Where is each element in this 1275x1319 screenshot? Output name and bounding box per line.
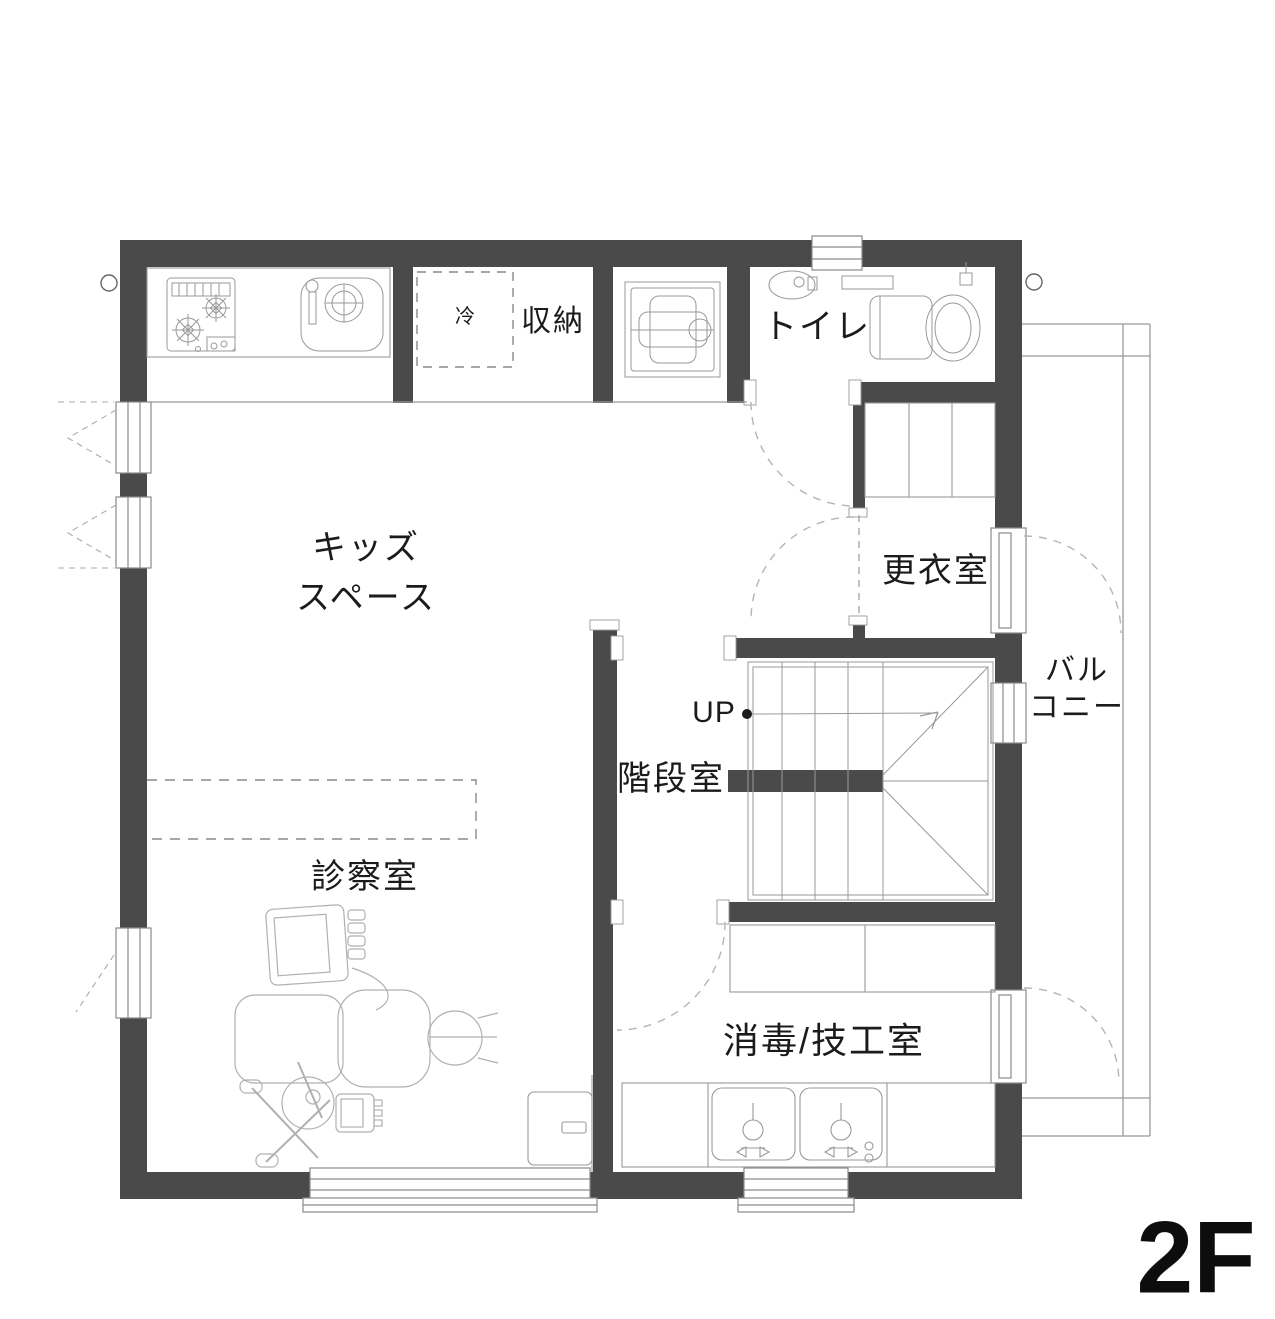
window-stair-right xyxy=(991,683,1026,743)
toilet-icon xyxy=(870,262,980,361)
window-left-2 xyxy=(116,497,151,568)
dental-chair-icon xyxy=(235,904,498,1167)
stairwell-label: 階段室 xyxy=(617,762,725,796)
toilet-door-arc xyxy=(751,402,855,506)
casement-symbols xyxy=(58,402,116,1012)
balcony-label-line1: バル xyxy=(1045,656,1109,686)
window-bottom-lab xyxy=(738,1168,854,1212)
window-left-3 xyxy=(116,928,151,1018)
up-arrow-icon xyxy=(920,712,938,729)
toilet-label: トイレ xyxy=(763,310,871,344)
stove-icon xyxy=(167,278,235,352)
wall-segment xyxy=(995,1083,1022,1172)
wall-segment xyxy=(120,267,147,402)
kitchen-counter xyxy=(147,268,390,357)
wall-segment xyxy=(593,628,617,922)
wall-segment xyxy=(120,568,147,928)
wall-segment xyxy=(593,922,613,1172)
wall-segment xyxy=(848,1172,1022,1199)
wall-segment xyxy=(855,382,995,403)
window-left-1 xyxy=(116,402,151,473)
wall-segment xyxy=(723,902,997,922)
kitchen-sink-icon xyxy=(301,278,383,351)
up-label: UP xyxy=(692,698,736,728)
balcony-door-arc-upper xyxy=(1024,536,1121,633)
door-swing-arcs xyxy=(617,402,1121,1083)
wall-segment xyxy=(393,267,413,403)
floor-plan: キッズ スペース 収納 冷 トイレ 更衣室 バル コニー UP 階段室 診察室 … xyxy=(0,0,1275,1319)
exam-room-label: 診察室 xyxy=(311,860,419,894)
stair-landing-wall xyxy=(728,770,883,792)
hand-basin-icon xyxy=(769,271,817,299)
storage-label: 収納 xyxy=(521,307,585,337)
changing-door-arc xyxy=(751,517,854,620)
floor-label: 2F xyxy=(1136,1200,1255,1317)
utility-fixture-icon xyxy=(625,282,720,377)
wall-segment xyxy=(730,638,995,658)
lab-sink-icon xyxy=(800,1088,882,1162)
window-toilet-top xyxy=(812,236,862,270)
wall-segment xyxy=(590,1172,747,1199)
balcony-door-lower xyxy=(991,990,1026,1083)
balcony-label-line2: コニー xyxy=(1029,693,1125,723)
kids-space-label-line2: スペース xyxy=(296,581,436,615)
refrigerator-label: 冷 xyxy=(455,307,477,327)
disinfection-lab-label: 消毒/技工室 xyxy=(723,1023,925,1059)
wall-segment xyxy=(593,267,613,403)
wall-segment xyxy=(860,240,1022,267)
wall-segment xyxy=(120,1172,310,1199)
lab-door-arc xyxy=(617,922,725,1030)
wardrobe xyxy=(865,403,995,497)
changing-room-label: 更衣室 xyxy=(882,554,990,588)
toilet-shelf xyxy=(842,276,893,289)
wall-segment xyxy=(120,473,147,497)
balcony-door-arc-lower xyxy=(1024,988,1119,1083)
wall-segment xyxy=(995,633,1022,683)
up-start-dot xyxy=(742,709,752,719)
exam-door-leaf xyxy=(528,1075,592,1172)
exam-partition-dashed xyxy=(147,780,476,839)
wall-segment xyxy=(120,240,815,267)
wall-segment xyxy=(853,403,865,513)
exterior-vent-circles xyxy=(101,274,1042,291)
wall-segment xyxy=(995,743,1022,990)
kids-space-label-line1: キッズ xyxy=(312,531,420,565)
balcony-outline xyxy=(1022,324,1150,1136)
window-bottom-exam xyxy=(303,1168,597,1212)
balcony-door-upper xyxy=(991,528,1026,633)
lab-sink-icon xyxy=(712,1088,795,1160)
lab-sink-counter xyxy=(622,1083,995,1167)
wall-segment xyxy=(995,267,1022,528)
lab-cabinets xyxy=(730,925,995,992)
wall-segment xyxy=(120,1018,147,1199)
